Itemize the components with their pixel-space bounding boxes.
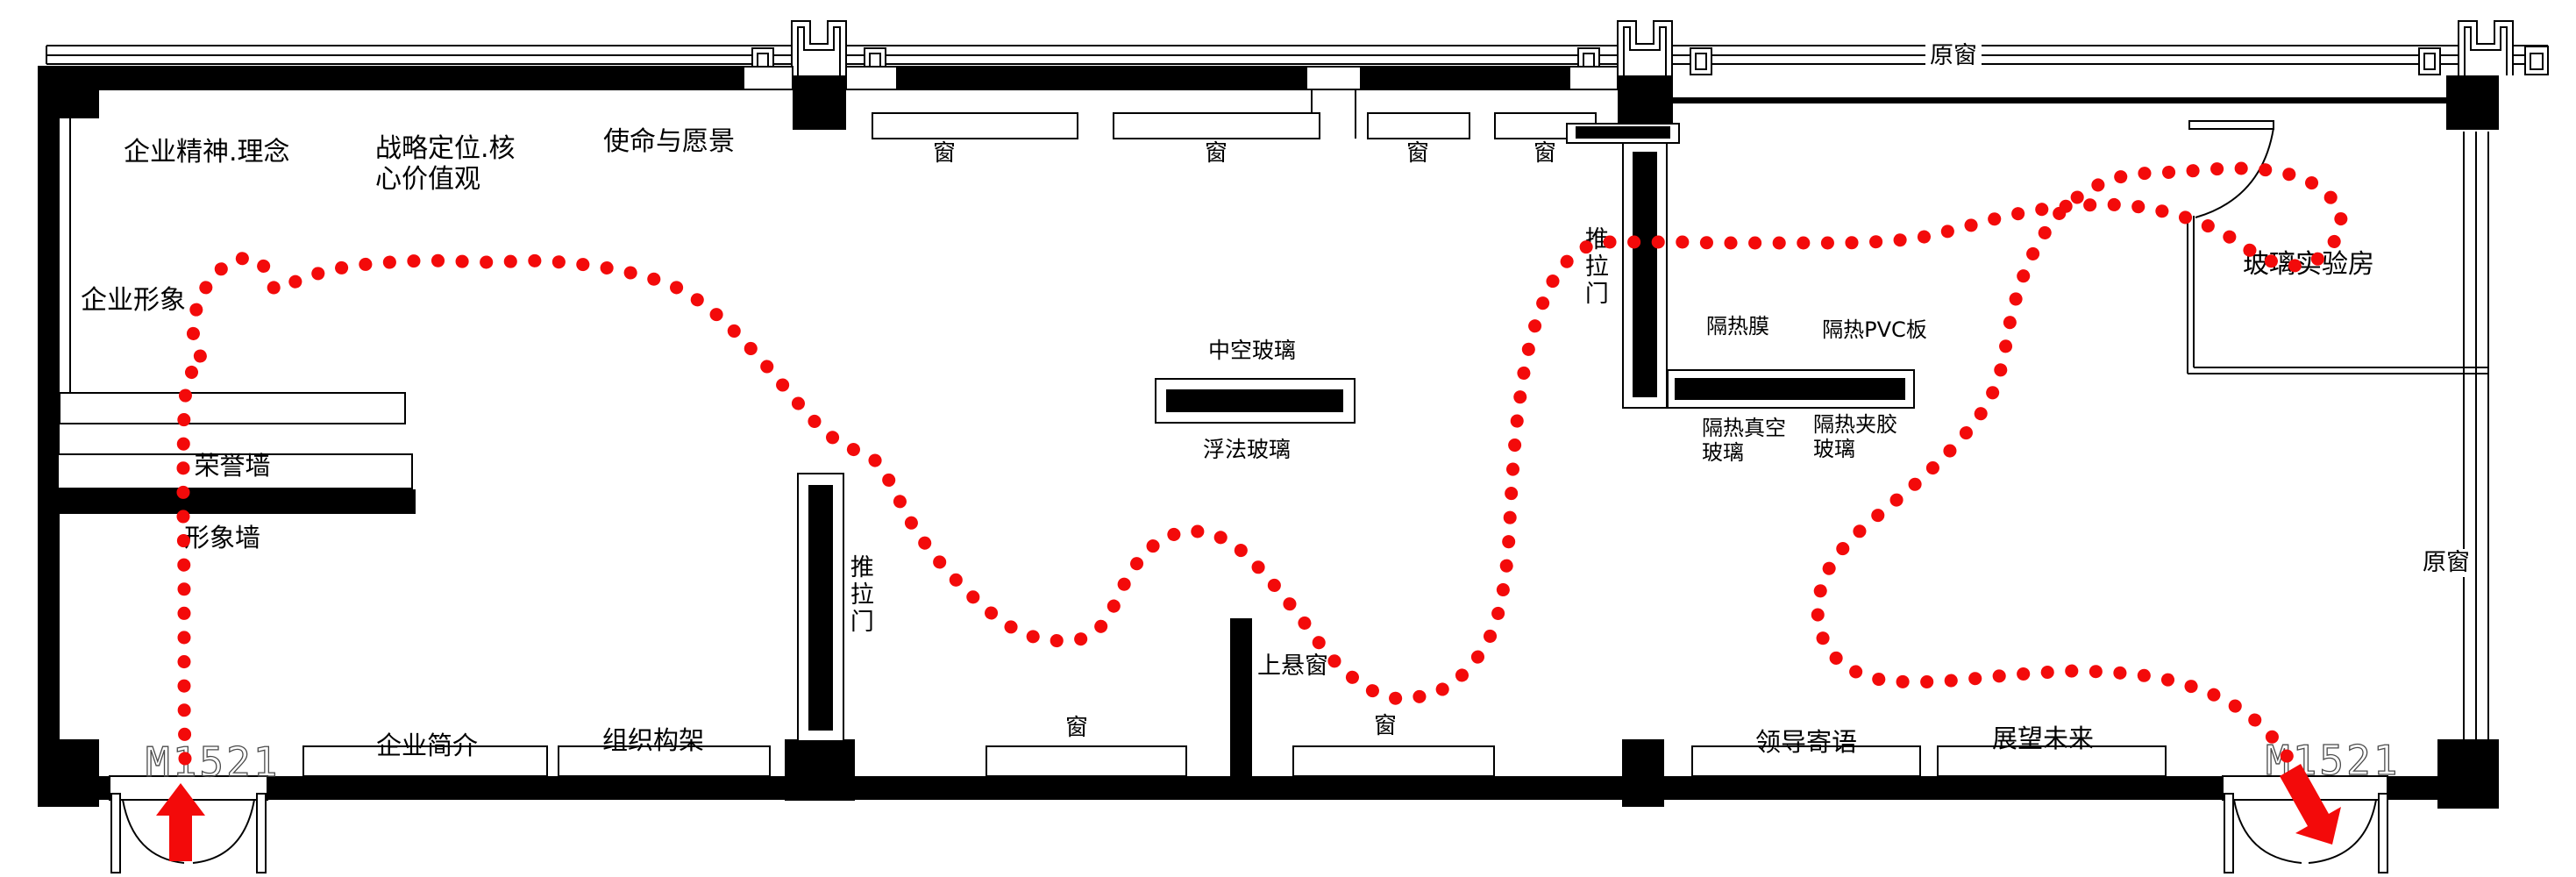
label-heat-vacuum-glass: 隔热真空玻璃 (1702, 416, 1797, 466)
exit-door (2224, 794, 2387, 873)
label-image-wall: 形象墙 (184, 523, 260, 553)
label-corporate-image: 企业形象 (81, 285, 186, 316)
label-leader-message: 领导寄语 (1755, 727, 1857, 757)
lab-door-swing-arc (2195, 128, 2274, 217)
label-window-1: 窗 (933, 140, 956, 168)
label-window-bottom-right: 窗 (1374, 713, 1397, 740)
lab-door-leaf (2189, 121, 2274, 129)
glass-lab-room (2188, 121, 2488, 374)
label-spirit: 企业精神.理念 (124, 137, 290, 168)
label-float-glass: 浮法玻璃 (1203, 437, 1291, 463)
label-sliding-door-mid: 推拉门 (845, 554, 873, 636)
label-original-window-right: 原窗 (2418, 549, 2474, 577)
label-window-3: 窗 (1406, 140, 1429, 168)
label-org-structure: 组织构架 (602, 725, 704, 755)
label-company-intro: 企业简介 (376, 731, 478, 760)
original-window-band-right (2464, 132, 2488, 741)
label-window-bottom-left: 窗 (1065, 715, 1088, 742)
label-honor-wall: 荣誉墙 (194, 451, 270, 481)
entry-door-code: M1521 (146, 738, 280, 786)
label-heat-laminated-glass: 隔热夹胶玻璃 (1813, 412, 1908, 462)
label-heat-film: 隔热膜 (1706, 314, 1769, 339)
exit-door-code: M1521 (2266, 737, 2400, 784)
floor-plan: 企业精神.理念 战略定位.核心价值观 使命与愿景 窗 窗 窗 窗 原窗 企业形象… (0, 0, 2576, 877)
label-original-window-top: 原窗 (1925, 42, 1982, 70)
label-heat-pvc: 隔热PVC板 (1822, 317, 1927, 342)
label-insulated-glass: 中空玻璃 (1208, 338, 1296, 364)
entry-door (111, 794, 266, 873)
label-strategy: 战略定位.核心价值观 (375, 133, 535, 196)
label-sliding-door-right: 推拉门 (1580, 226, 1608, 308)
label-mission: 使命与愿景 (603, 126, 735, 157)
label-glass-lab: 玻璃实验房 (2243, 249, 2374, 280)
label-window-2: 窗 (1205, 140, 1228, 168)
label-window-4: 窗 (1534, 140, 1556, 168)
label-top-hung-window: 上悬窗 (1257, 652, 1328, 681)
label-future-outlook: 展望未来 (1992, 724, 2094, 753)
